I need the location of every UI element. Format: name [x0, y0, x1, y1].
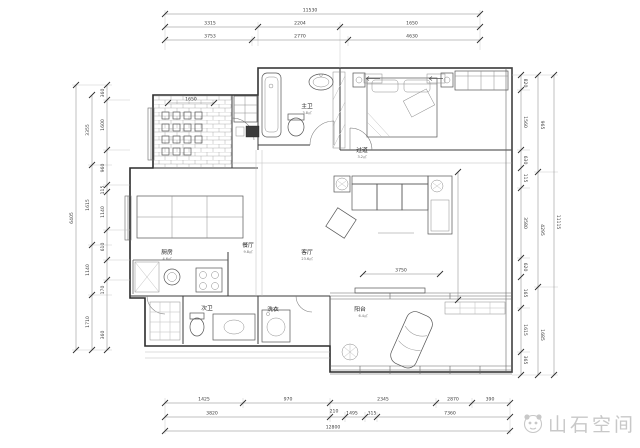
room-label-kitchen: 厨房 [161, 248, 173, 256]
watermark-text: 山石空间 [548, 414, 636, 436]
dim-bottom: 1425 970 2345 2870 390 3820 210 1495 315… [162, 397, 513, 435]
sliding-door-arrow-icon [364, 74, 445, 83]
dim-value: 11115 [555, 215, 561, 230]
dim-value: 12800 [326, 425, 341, 431]
kitchen-sink-icon [164, 269, 180, 285]
dining-furniture [137, 196, 243, 238]
dim-value: 1140 [100, 206, 106, 218]
room-label-master-bath: 主卫 [301, 102, 313, 110]
kitchen-fixtures [133, 260, 228, 294]
stove-icon [196, 268, 222, 292]
appliance-icon [246, 126, 259, 137]
bed-icon [367, 78, 437, 137]
dim-value: 3820 [206, 411, 218, 417]
dim-value: 1710 [85, 316, 91, 328]
dim-value: 3750 [395, 268, 407, 274]
dim-value: 620 [522, 263, 528, 272]
sink-icon [224, 320, 244, 334]
nightstand-icon [441, 73, 453, 87]
room-area-kitchen: 4.6㎡ [162, 256, 172, 261]
dim-value: 820 [522, 79, 528, 88]
dim-value: 1425 [198, 397, 210, 403]
room-area-master-bath: 3.8㎡ [302, 110, 312, 115]
room-area-living: 23.6㎡ [301, 256, 313, 261]
room-area-hallway: 3.2㎡ [357, 154, 367, 159]
dim-value: 1140 [85, 264, 91, 276]
dim-value: 1600 [100, 119, 106, 131]
room-label-hallway: 过道 [356, 146, 368, 154]
living-room-furniture [326, 176, 452, 293]
dim-value: 165 [522, 289, 528, 298]
washing-machine-icon [262, 310, 290, 342]
dim-value: 390 [486, 397, 495, 403]
room-label-living: 客厅 [301, 248, 313, 256]
dim-value: 960 [100, 164, 106, 173]
dim-value: 315 [368, 411, 377, 417]
dim-value: 1560 [522, 116, 528, 128]
dim-top: 11530 3315 2204 1650 3753 2770 4630 [162, 8, 483, 69]
dim-value: 610 [100, 243, 106, 252]
master-bedroom-furniture [353, 71, 508, 137]
dim-value: 2870 [447, 397, 459, 403]
dim-value: 1615 [522, 324, 528, 336]
room-area-dining: 9.8㎡ [243, 249, 253, 254]
dim-value: 1495 [346, 411, 358, 417]
room-area-balcony: 6.4㎡ [358, 313, 368, 318]
dim-value: 1615 [85, 199, 91, 211]
dim-value: 4295 [539, 224, 545, 236]
master-bath-fixtures [262, 73, 333, 137]
tatami-room [154, 96, 232, 167]
dim-value: 2345 [377, 397, 389, 403]
room-label-laundry: 洗衣 [267, 305, 279, 313]
dim-value: 630 [522, 156, 528, 165]
dim-value: 4630 [406, 34, 418, 40]
room-label-dining: 餐厅 [242, 241, 254, 249]
dim-value: 3753 [204, 34, 216, 40]
dim-value: 1685 [539, 329, 545, 341]
vanity-icon [213, 314, 255, 340]
dim-value: 7360 [444, 411, 456, 417]
dim-value: 1650 [406, 21, 418, 27]
dim-value: 1650 [185, 97, 197, 103]
floor-plan-drawing: 厨房 4.6㎡ 餐厅 9.8㎡ 客厅 23.6㎡ 过道 3.2㎡ 主卫 3.8㎡… [0, 0, 640, 448]
dim-value: 210 [330, 409, 339, 415]
hall-cabinet [234, 96, 259, 137]
toilet-icon [288, 118, 304, 136]
dim-value: 115 [522, 174, 528, 183]
toilet-icon [190, 318, 204, 336]
room-label-balcony: 阳台 [354, 305, 366, 313]
dim-value: 11530 [303, 8, 318, 14]
dim-value: 170 [100, 286, 106, 295]
dim-value: 360 [100, 331, 106, 340]
tv-cabinet-icon [355, 288, 425, 293]
sofa-icon [352, 176, 428, 184]
dim-value: 365 [522, 356, 528, 365]
dim-left: 6405 3355 1615 1140 1710 360 1600 960 11… [69, 82, 130, 353]
dim-value: 965 [539, 121, 545, 130]
lounge-chair-icon [388, 309, 435, 371]
room-label-second-bath: 次卫 [201, 304, 213, 312]
bathtub-icon [265, 77, 278, 132]
panda-logo-icon [524, 414, 541, 432]
watermark: 山石空间 [524, 414, 636, 436]
wardrobe-icon [455, 71, 508, 90]
dim-value: 3580 [522, 217, 528, 229]
dim-value: 3315 [204, 21, 216, 27]
dim-value: 970 [284, 397, 293, 403]
dim-right: 820 1560 630 115 3580 620 165 1615 365 9… [512, 72, 561, 378]
dim-value: 360 [100, 89, 106, 98]
dim-value: 115 [100, 186, 106, 195]
dim-value: 2204 [294, 21, 306, 27]
nightstand-icon [353, 73, 365, 87]
dim-value: 3355 [85, 124, 91, 136]
armchair-icon [326, 208, 356, 238]
dim-value: 2770 [294, 34, 306, 40]
shower-icon [150, 302, 180, 340]
balcony-furniture [342, 302, 505, 371]
dim-value: 6405 [69, 212, 75, 224]
